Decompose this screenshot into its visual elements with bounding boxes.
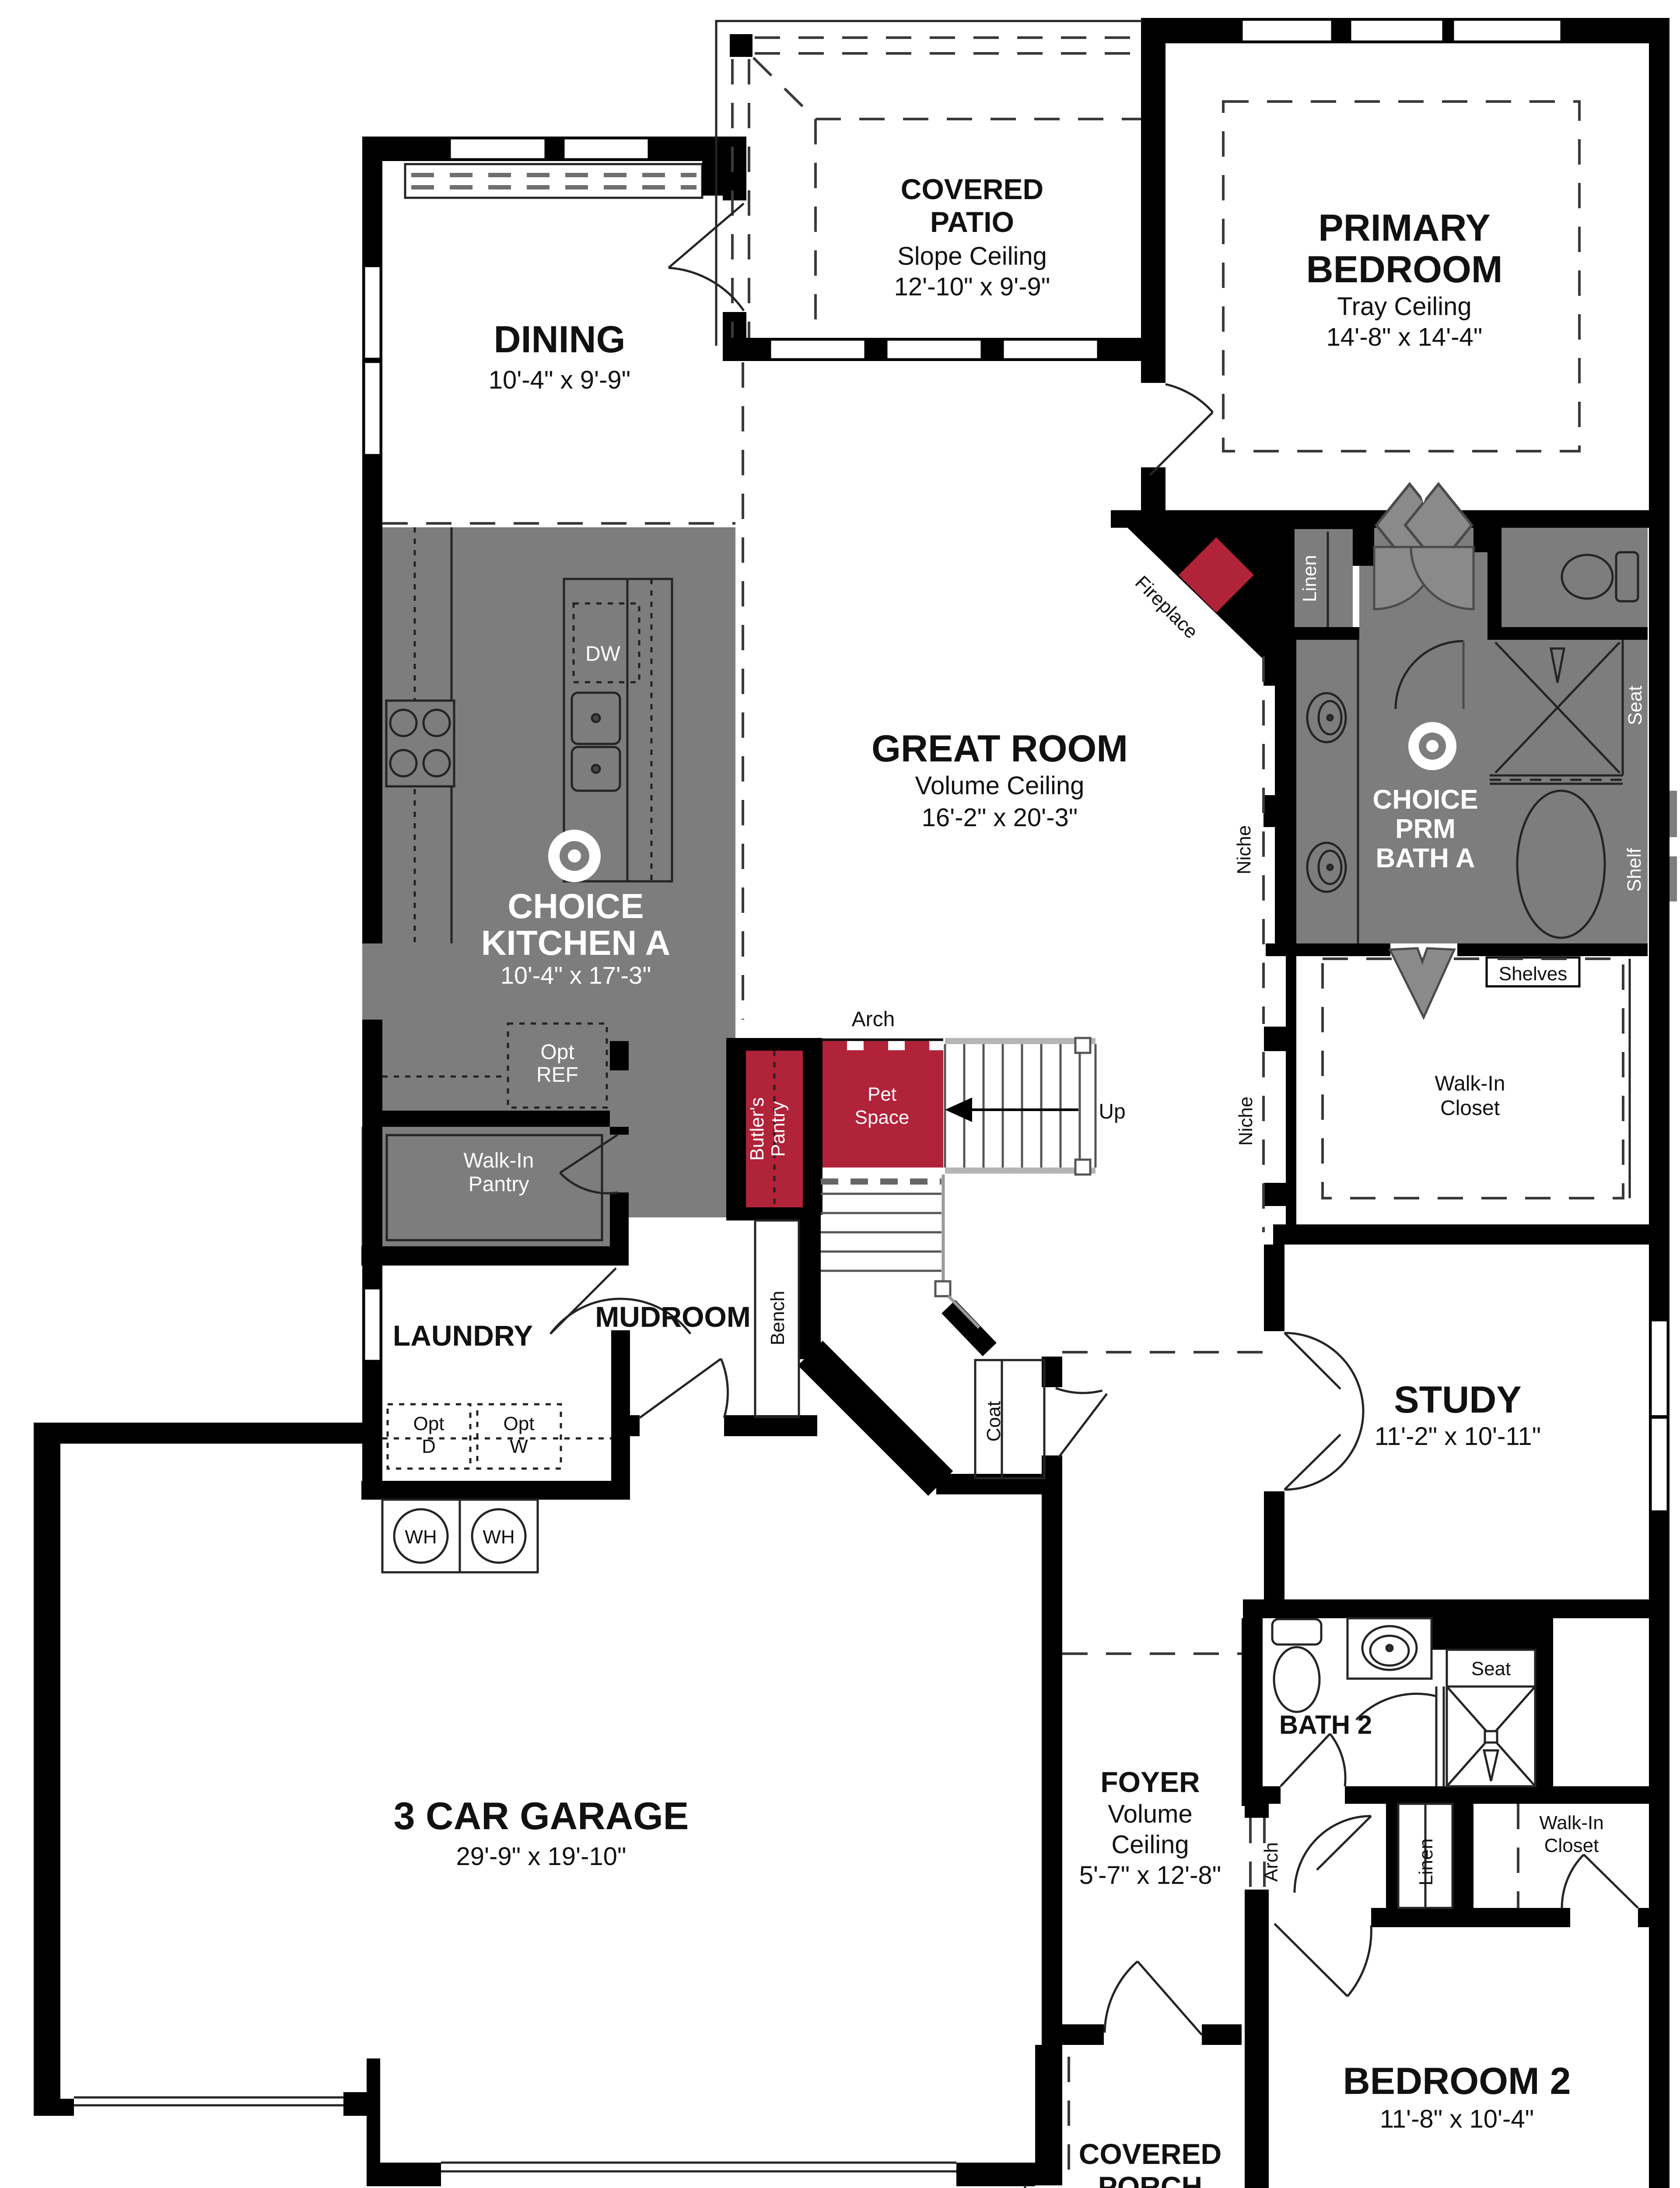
- svg-text:14'-8" x 14'-4": 14'-8" x 14'-4": [1326, 323, 1483, 351]
- svg-text:GREAT ROOM: GREAT ROOM: [871, 728, 1128, 770]
- svg-text:BEDROOM 2: BEDROOM 2: [1343, 2060, 1571, 2102]
- svg-text:Walk-In: Walk-In: [1539, 1812, 1604, 1834]
- svg-text:KITCHEN A: KITCHEN A: [481, 923, 671, 962]
- svg-text:Bench: Bench: [767, 1291, 788, 1346]
- svg-text:11'-2" x 10'-11": 11'-2" x 10'-11": [1375, 1422, 1541, 1451]
- svg-text:BATH 2: BATH 2: [1279, 1710, 1372, 1739]
- svg-text:Closet: Closet: [1440, 1097, 1500, 1120]
- svg-text:Closet: Closet: [1544, 1835, 1599, 1856]
- svg-text:COVERED: COVERED: [901, 173, 1043, 205]
- svg-text:WH: WH: [405, 1526, 437, 1548]
- svg-text:BEDROOM: BEDROOM: [1306, 249, 1502, 291]
- svg-text:Butler's: Butler's: [746, 1097, 768, 1161]
- svg-text:Volume: Volume: [1108, 1800, 1192, 1828]
- svg-text:DW: DW: [585, 642, 621, 666]
- svg-text:5'-7" x 12'-8": 5'-7" x 12'-8": [1079, 1861, 1221, 1890]
- svg-text:3 CAR GARAGE: 3 CAR GARAGE: [394, 1794, 689, 1837]
- svg-text:Walk-In: Walk-In: [1435, 1072, 1505, 1095]
- svg-text:16'-2" x 20'-3": 16'-2" x 20'-3": [922, 803, 1078, 832]
- svg-text:REF: REF: [536, 1063, 578, 1087]
- svg-text:Space: Space: [855, 1107, 910, 1128]
- svg-text:Opt: Opt: [413, 1413, 444, 1434]
- svg-text:Linen: Linen: [1415, 1838, 1437, 1886]
- svg-text:FOYER: FOYER: [1100, 1766, 1200, 1798]
- svg-text:10'-4" x 17'-3": 10'-4" x 17'-3": [500, 961, 651, 989]
- svg-text:PATIO: PATIO: [930, 206, 1014, 238]
- svg-text:PRIMARY: PRIMARY: [1318, 207, 1490, 249]
- svg-text:CHOICE: CHOICE: [507, 887, 644, 926]
- svg-text:Pantry: Pantry: [767, 1101, 789, 1157]
- svg-text:12'-10" x 9'-9": 12'-10" x 9'-9": [894, 273, 1050, 301]
- svg-text:MUDROOM: MUDROOM: [595, 1301, 751, 1333]
- svg-text:11'-8" x 10'-4": 11'-8" x 10'-4": [1380, 2105, 1534, 2133]
- svg-text:Opt: Opt: [540, 1041, 574, 1064]
- svg-text:WH: WH: [483, 1526, 514, 1548]
- svg-text:Tray Ceiling: Tray Ceiling: [1337, 292, 1471, 321]
- svg-text:Shelf: Shelf: [1624, 848, 1645, 892]
- svg-text:Pantry: Pantry: [469, 1173, 529, 1196]
- svg-text:BATH A: BATH A: [1375, 843, 1475, 873]
- svg-text:D: D: [422, 1436, 436, 1457]
- svg-text:PRM: PRM: [1395, 814, 1456, 844]
- svg-text:Coat: Coat: [983, 1401, 1004, 1442]
- svg-text:DINING: DINING: [494, 319, 626, 361]
- svg-text:COVERED: COVERED: [1079, 2138, 1221, 2170]
- svg-text:Shelves: Shelves: [1499, 963, 1568, 985]
- svg-text:Niche: Niche: [1233, 825, 1255, 875]
- svg-text:Walk-In: Walk-In: [464, 1149, 534, 1172]
- svg-text:Arch: Arch: [1260, 1842, 1282, 1882]
- svg-text:Arch: Arch: [852, 1008, 895, 1031]
- svg-text:Opt: Opt: [504, 1413, 535, 1434]
- svg-text:W: W: [510, 1436, 528, 1457]
- svg-text:Up: Up: [1099, 1100, 1125, 1123]
- svg-text:STUDY: STUDY: [1394, 1379, 1521, 1421]
- svg-text:Seat: Seat: [1624, 686, 1646, 726]
- svg-text:29'-9" x 19'-10": 29'-9" x 19'-10": [456, 1842, 626, 1871]
- svg-text:LAUNDRY: LAUNDRY: [393, 1319, 533, 1352]
- svg-text:Niche: Niche: [1235, 1097, 1256, 1146]
- svg-text:PORCH: PORCH: [1098, 2170, 1202, 2188]
- svg-text:Volume Ceiling: Volume Ceiling: [915, 771, 1085, 800]
- svg-text:CHOICE: CHOICE: [1372, 785, 1478, 815]
- svg-text:Linen: Linen: [1299, 555, 1320, 602]
- svg-text:10'-4" x 9'-9": 10'-4" x 9'-9": [489, 366, 630, 394]
- svg-text:Ceiling: Ceiling: [1111, 1830, 1189, 1859]
- svg-text:Pet: Pet: [868, 1083, 896, 1105]
- svg-text:Slope Ceiling: Slope Ceiling: [897, 242, 1047, 270]
- svg-text:Seat: Seat: [1471, 1658, 1511, 1680]
